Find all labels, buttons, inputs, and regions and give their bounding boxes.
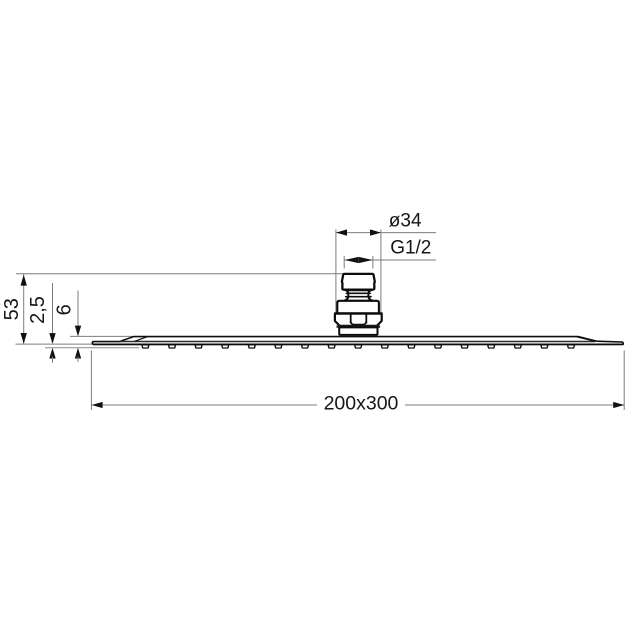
svg-text:53: 53	[1, 298, 23, 320]
svg-text:G1/2: G1/2	[390, 237, 431, 258]
svg-text:2,5: 2,5	[27, 296, 49, 324]
svg-text:200x300: 200x300	[324, 392, 399, 414]
svg-text:ø34: ø34	[389, 210, 422, 231]
svg-text:6: 6	[53, 304, 75, 315]
